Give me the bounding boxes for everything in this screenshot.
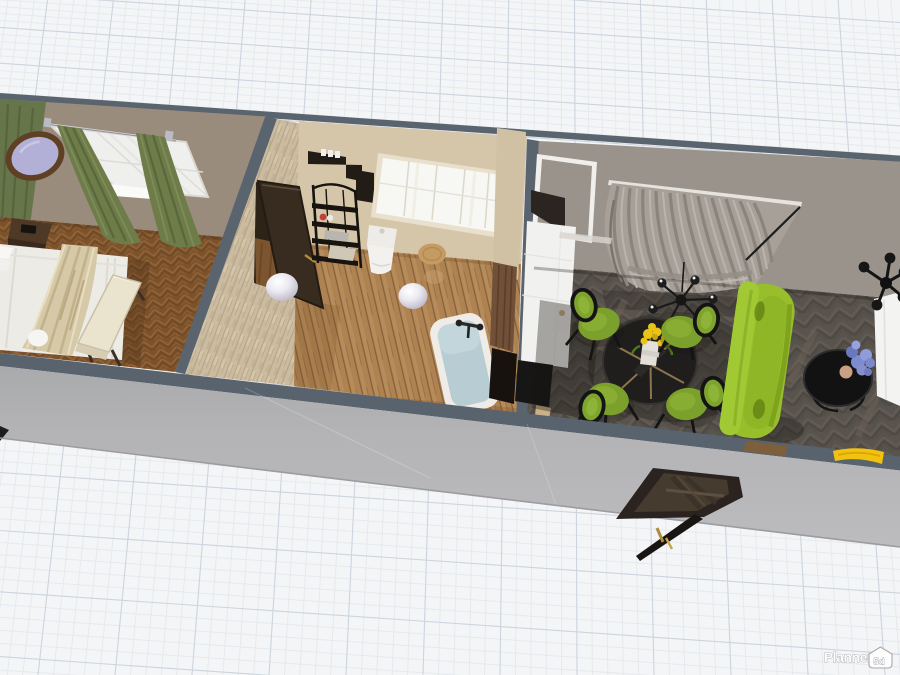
svg-text:5d: 5d <box>874 657 885 668</box>
svg-text:Planner: Planner <box>824 650 873 665</box>
